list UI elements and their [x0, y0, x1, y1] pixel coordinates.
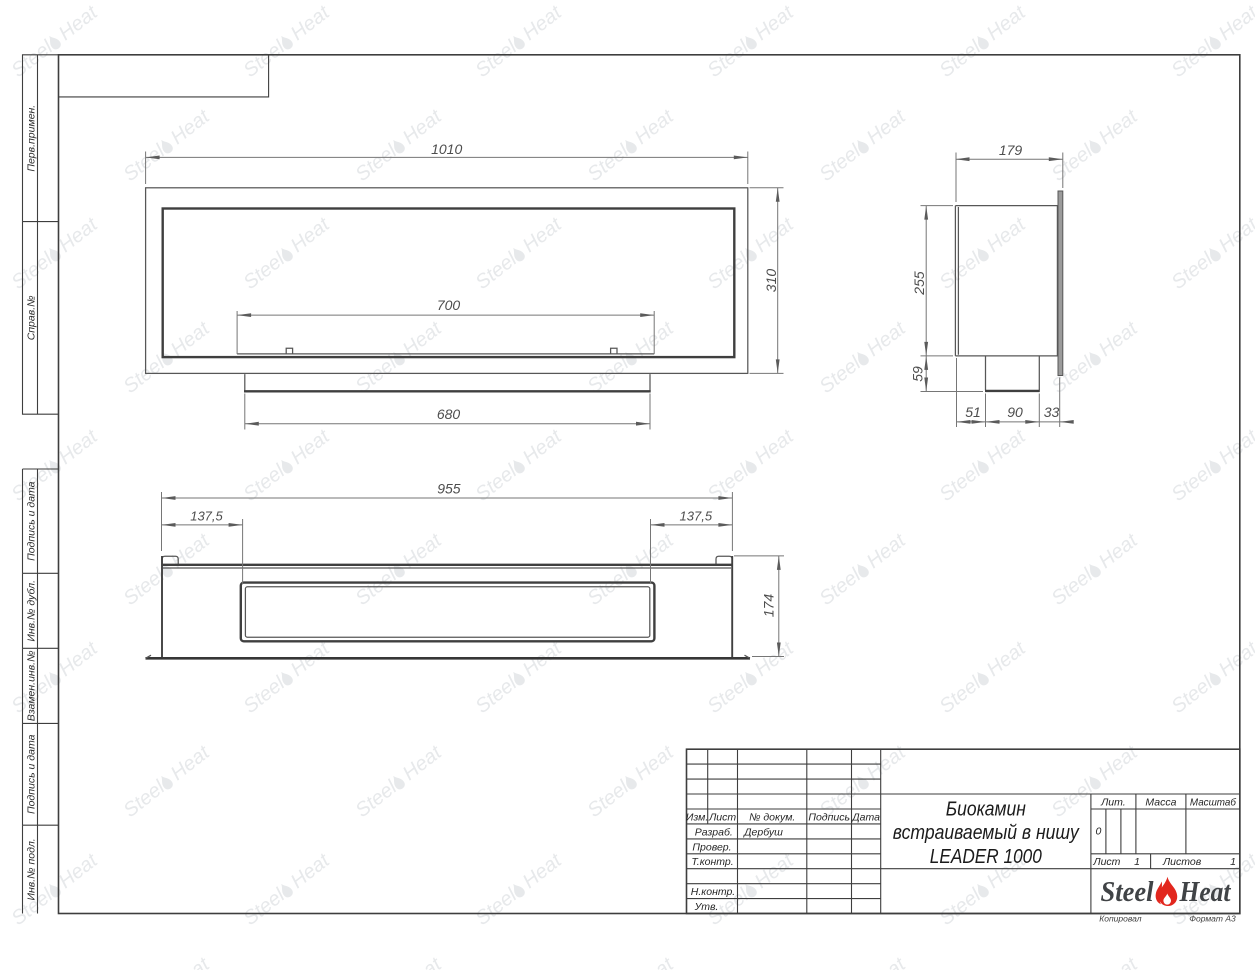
svg-text:Провер.: Провер. [692, 841, 731, 853]
svg-text:Формат А3: Формат А3 [1189, 914, 1236, 924]
svg-text:Инв.№ подл.: Инв.№ подл. [26, 838, 38, 900]
svg-text:Подпись и дата: Подпись и дата [26, 481, 38, 561]
svg-text:Перв.примен.: Перв.примен. [26, 105, 38, 172]
svg-text:955: 955 [437, 481, 461, 497]
svg-text:Копировал: Копировал [1099, 914, 1141, 924]
svg-text:174: 174 [761, 594, 777, 618]
svg-text:Масштаб: Масштаб [1190, 797, 1237, 809]
svg-text:Биокамин: Биокамин [946, 799, 1026, 821]
svg-text:0: 0 [1095, 826, 1101, 838]
svg-text:Листов: Листов [1162, 856, 1202, 868]
svg-text:59: 59 [910, 366, 926, 382]
svg-text:Разраб.: Разраб. [695, 826, 733, 838]
svg-text:Подпись и дата: Подпись и дата [26, 734, 38, 814]
svg-text:встраиваемый в нишу: встраиваемый в нишу [893, 822, 1080, 844]
svg-text:Лист: Лист [1092, 856, 1120, 868]
svg-text:1: 1 [1230, 856, 1236, 868]
svg-text:Т.контр.: Т.контр. [691, 856, 733, 868]
svg-text:255: 255 [911, 271, 927, 296]
svg-text:Утв.: Утв. [694, 901, 719, 913]
svg-text:Лит.: Лит. [1100, 797, 1126, 809]
svg-text:1010: 1010 [431, 141, 462, 157]
svg-text:Лист: Лист [708, 811, 736, 823]
svg-text:Масса: Масса [1145, 797, 1176, 809]
svg-text:179: 179 [999, 142, 1023, 158]
svg-text:Дата: Дата [851, 811, 880, 823]
svg-text:Н.контр.: Н.контр. [691, 886, 735, 898]
svg-text:700: 700 [437, 297, 461, 313]
svg-text:137,5: 137,5 [190, 509, 223, 524]
svg-text:90: 90 [1007, 404, 1023, 420]
svg-text:51: 51 [965, 404, 981, 420]
svg-text:№ докум.: № докум. [749, 811, 795, 823]
svg-text:Подпись: Подпись [808, 811, 850, 823]
svg-text:680: 680 [437, 406, 461, 422]
svg-text:Изм.: Изм. [686, 811, 708, 823]
svg-text:310: 310 [763, 269, 779, 293]
svg-text:33: 33 [1044, 404, 1060, 420]
svg-text:LEADER 1000: LEADER 1000 [930, 846, 1042, 868]
svg-text:Взамен.инв.№: Взамен.инв.№ [26, 651, 38, 722]
svg-text:Справ.№: Справ.№ [26, 295, 38, 340]
svg-text:1: 1 [1134, 856, 1140, 868]
svg-text:Heat: Heat [1179, 877, 1232, 908]
svg-text:137,5: 137,5 [680, 509, 713, 524]
svg-text:Дербуш: Дербуш [743, 826, 783, 838]
svg-text:Steel: Steel [1101, 877, 1154, 908]
svg-text:Инв.№ дубл.: Инв.№ дубл. [26, 580, 38, 642]
